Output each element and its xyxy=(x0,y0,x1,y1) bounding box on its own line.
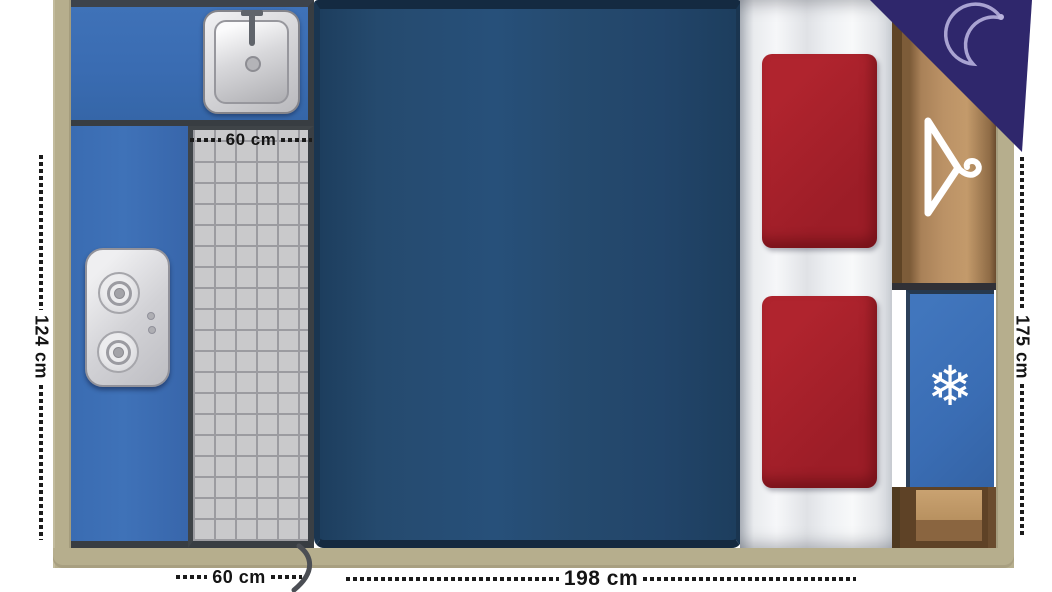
dimension-label: 175 cm xyxy=(1012,315,1033,379)
dash-line xyxy=(190,138,221,142)
storage-compartment xyxy=(892,487,996,548)
sink xyxy=(203,10,300,114)
dash-line xyxy=(176,575,207,579)
wall-bottom xyxy=(53,548,1014,568)
dimension-left-depth: 124 cm xyxy=(26,155,56,540)
stove-knob xyxy=(147,312,155,320)
hanger-icon xyxy=(913,110,997,222)
snowflake-icon: ❄ xyxy=(906,356,994,416)
stove-knob xyxy=(148,326,156,334)
dash-line xyxy=(643,577,856,581)
stove xyxy=(85,248,170,387)
dash-line xyxy=(1020,384,1024,537)
burner-icon xyxy=(97,331,139,373)
dimension-shower-width-top: 60 cm xyxy=(190,131,312,149)
dimension-label: 198 cm xyxy=(564,567,638,591)
sink-drain xyxy=(245,56,261,72)
storage-shelf-top xyxy=(916,490,982,520)
dash-line xyxy=(281,138,312,142)
dash-line xyxy=(346,577,559,581)
bed xyxy=(314,0,742,548)
dimension-shower-width-bottom: 60 cm xyxy=(176,566,302,588)
shower-tiles xyxy=(188,126,314,548)
seat-cushion-bottom xyxy=(762,296,877,488)
dimension-right-depth: 175 cm xyxy=(1007,157,1037,537)
dash-line xyxy=(1020,157,1024,310)
faucet-stem xyxy=(249,10,255,46)
dimension-bed-width: 198 cm xyxy=(346,568,856,590)
dimension-label: 60 cm xyxy=(212,567,266,588)
dimension-label: 124 cm xyxy=(31,315,52,379)
dash-line xyxy=(39,155,43,310)
dash-line xyxy=(39,385,43,540)
dimension-label: 60 cm xyxy=(226,130,277,150)
camper-floorplan: 60 cm ❄ 60 cm 198 cm xyxy=(0,0,1052,592)
dash-line xyxy=(271,575,302,579)
seat-cushion-top xyxy=(762,54,877,248)
burner-icon xyxy=(98,272,140,314)
wardrobe-fridge-divider xyxy=(892,283,996,290)
storage-shelf-front xyxy=(916,520,982,541)
